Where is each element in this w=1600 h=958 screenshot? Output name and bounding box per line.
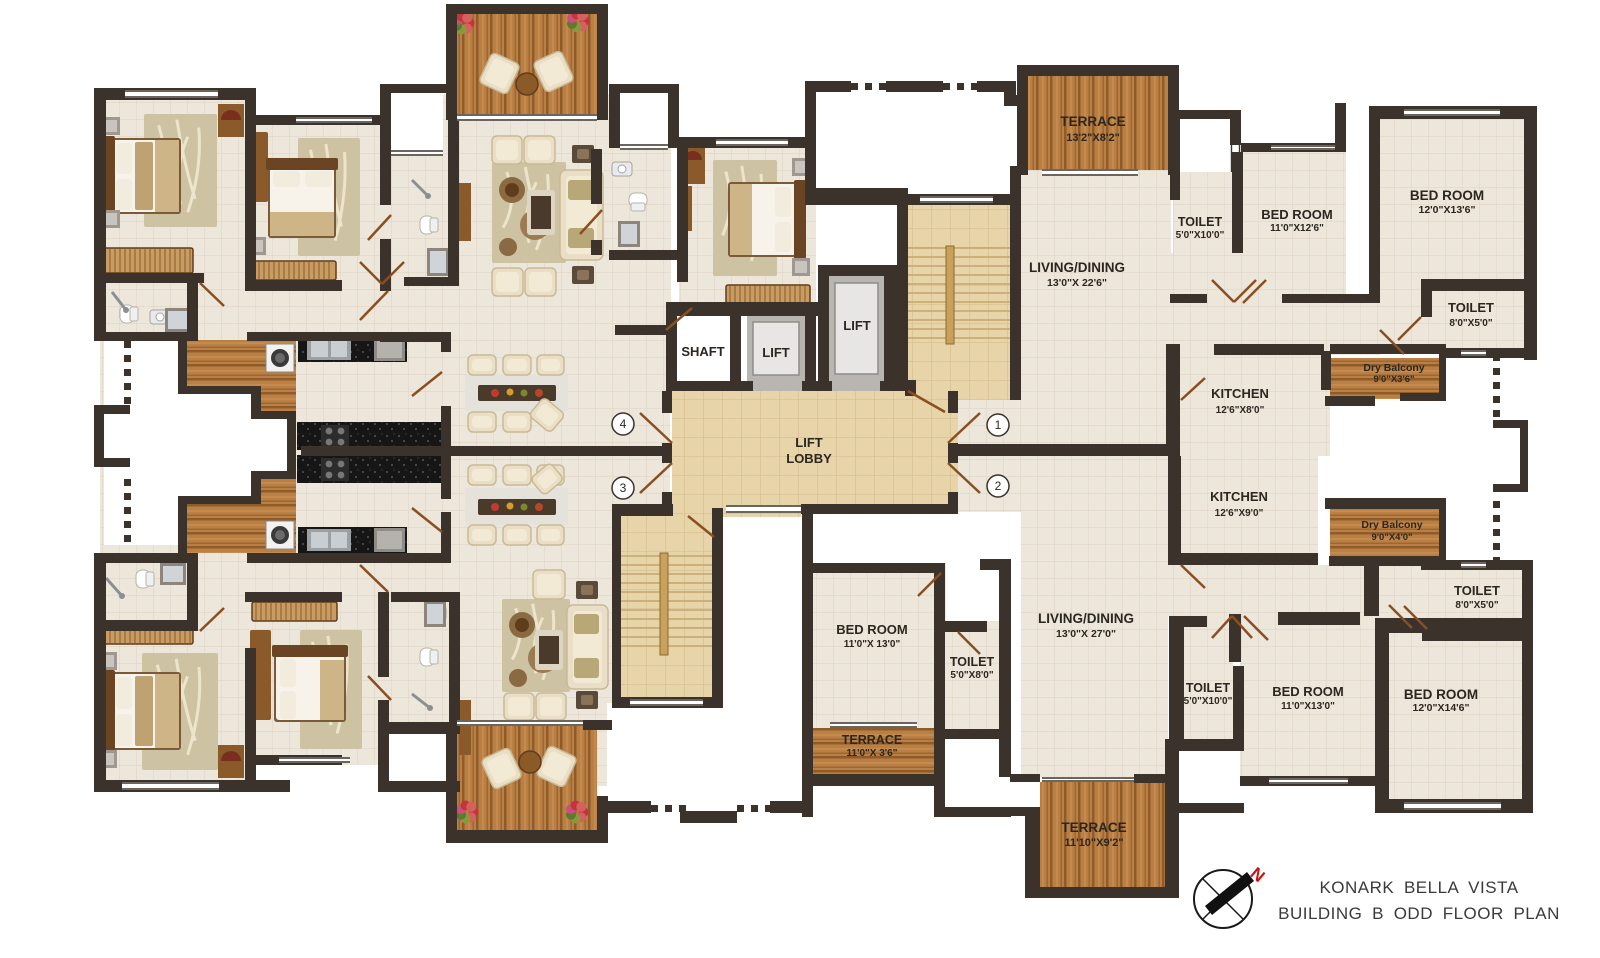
svg-text:11'0"X13'0": 11'0"X13'0" [1281, 701, 1335, 712]
svg-text:LIFT: LIFT [795, 435, 822, 450]
svg-text:LIFT: LIFT [843, 318, 870, 333]
svg-text:BED ROOM: BED ROOM [1272, 684, 1344, 699]
svg-text:8'0"X5'0": 8'0"X5'0" [1455, 600, 1498, 611]
svg-text:TERRACE: TERRACE [842, 733, 902, 747]
svg-text:3: 3 [620, 481, 627, 495]
svg-text:LIVING/DINING: LIVING/DINING [1038, 611, 1134, 626]
svg-text:BED ROOM: BED ROOM [1410, 188, 1484, 203]
svg-text:KITCHEN: KITCHEN [1211, 386, 1269, 401]
svg-text:2: 2 [995, 479, 1002, 493]
svg-text:LIVING/DINING: LIVING/DINING [1029, 260, 1125, 275]
svg-text:SHAFT: SHAFT [681, 344, 724, 359]
svg-text:KITCHEN: KITCHEN [1210, 489, 1268, 504]
svg-text:Dry Balcony: Dry Balcony [1363, 362, 1424, 374]
svg-text:BED ROOM: BED ROOM [1404, 687, 1478, 702]
svg-text:8'0"X5'0": 8'0"X5'0" [1449, 318, 1492, 329]
svg-text:4: 4 [620, 417, 627, 431]
svg-text:12'6"X9'0": 12'6"X9'0" [1215, 508, 1264, 519]
svg-text:TOILET: TOILET [950, 655, 995, 669]
svg-text:BED ROOM: BED ROOM [1261, 207, 1333, 222]
svg-text:BED ROOM: BED ROOM [836, 622, 908, 637]
svg-text:12'6"X8'0": 12'6"X8'0" [1216, 405, 1265, 416]
svg-text:TERRACE: TERRACE [1061, 820, 1126, 835]
svg-text:9'0"X4'0": 9'0"X4'0" [1372, 532, 1413, 543]
svg-text:5'0"X10'0": 5'0"X10'0" [1184, 696, 1233, 707]
svg-text:TOILET: TOILET [1178, 215, 1223, 229]
svg-text:1: 1 [995, 418, 1002, 432]
svg-text:TOILET: TOILET [1186, 681, 1231, 695]
svg-text:9'0"X3'6": 9'0"X3'6" [1374, 374, 1415, 385]
svg-text:12'0"X14'6": 12'0"X14'6" [1413, 702, 1470, 714]
svg-text:11'10"X9'2": 11'10"X9'2" [1064, 837, 1123, 849]
svg-text:LIFT: LIFT [762, 345, 789, 360]
svg-text:13'0"X 27'0": 13'0"X 27'0" [1056, 628, 1116, 640]
svg-text:TERRACE: TERRACE [1060, 114, 1125, 129]
svg-text:13'0"X 22'6": 13'0"X 22'6" [1047, 277, 1107, 289]
svg-text:TOILET: TOILET [1448, 300, 1494, 315]
svg-text:11'0"X12'6": 11'0"X12'6" [1270, 223, 1324, 234]
svg-text:5'0"X8'0": 5'0"X8'0" [950, 670, 993, 681]
svg-text:LOBBY: LOBBY [786, 451, 832, 466]
svg-text:Dry Balcony: Dry Balcony [1361, 519, 1422, 531]
svg-text:11'0"X 13'0": 11'0"X 13'0" [844, 639, 901, 650]
svg-text:TOILET: TOILET [1454, 583, 1500, 598]
svg-text:5'0"X10'0": 5'0"X10'0" [1176, 230, 1225, 241]
svg-text:BUILDING B ODD FLOOR PLAN: BUILDING B ODD FLOOR PLAN [1278, 904, 1560, 923]
svg-text:KONARK BELLA VISTA: KONARK BELLA VISTA [1319, 878, 1518, 897]
svg-text:12'0"X13'6": 12'0"X13'6" [1419, 204, 1476, 216]
svg-text:13'2"X8'2": 13'2"X8'2" [1066, 132, 1120, 144]
svg-text:11'0"X 3'6": 11'0"X 3'6" [847, 748, 898, 759]
